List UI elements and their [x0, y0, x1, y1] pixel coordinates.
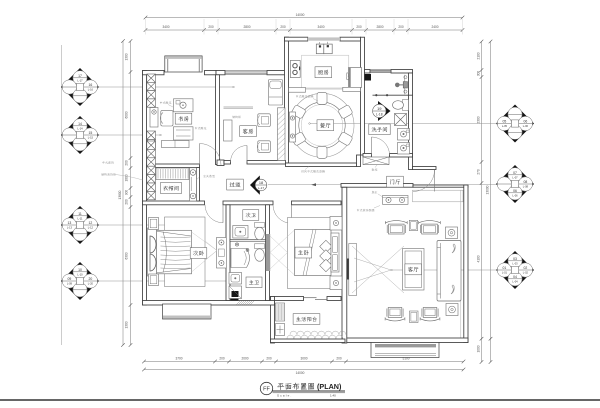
svg-text:06: 06 [524, 120, 528, 124]
svg-text:2300: 2300 [476, 116, 480, 123]
svg-text:3700: 3700 [175, 357, 182, 361]
svg-text:08: 08 [524, 180, 528, 184]
svg-text:1800: 1800 [125, 174, 129, 181]
svg-text:6300: 6300 [125, 252, 129, 259]
svg-text:06: 06 [513, 189, 517, 193]
svg-text:1000: 1000 [476, 345, 480, 352]
svg-text:Scale.: Scale. [277, 394, 293, 398]
svg-text:L-05: L-05 [502, 124, 508, 128]
svg-text:19: 19 [377, 106, 382, 111]
svg-text:13: 13 [68, 221, 72, 225]
svg-text:L-17: L-17 [77, 78, 83, 82]
svg-text:L-06: L-06 [512, 193, 518, 197]
svg-text:2100: 2100 [476, 52, 480, 59]
svg-text:900: 900 [125, 190, 129, 196]
svg-text:200: 200 [336, 357, 342, 361]
svg-text:200: 200 [356, 25, 362, 29]
svg-text:L-20: L-20 [88, 282, 94, 286]
svg-text:200: 200 [219, 357, 225, 361]
svg-text:L-16: L-16 [88, 88, 94, 92]
svg-text:2000: 2000 [241, 357, 248, 361]
svg-text:3000: 3000 [300, 357, 307, 361]
svg-text:13800: 13800 [118, 190, 122, 199]
svg-text:L-12: L-12 [88, 226, 94, 230]
svg-text:L-03: L-03 [512, 261, 518, 265]
svg-text:01: 01 [503, 266, 507, 270]
svg-text:L-04: L-04 [512, 279, 518, 283]
svg-text:13000: 13000 [485, 185, 489, 194]
svg-text:14: 14 [78, 122, 82, 126]
svg-text:07: 07 [513, 171, 517, 175]
svg-text:L-06: L-06 [523, 124, 529, 128]
svg-text:6000: 6000 [125, 111, 129, 118]
svg-text:14000: 14000 [296, 371, 305, 375]
svg-text:300: 300 [476, 71, 480, 77]
svg-text:(PLAN): (PLAN) [317, 382, 342, 391]
svg-text:04: 04 [513, 275, 517, 279]
svg-text:3400: 3400 [162, 25, 169, 29]
svg-text:L-11: L-11 [78, 216, 84, 220]
svg-text:200: 200 [266, 357, 272, 361]
svg-text:02: 02 [524, 266, 528, 270]
svg-text:L-15: L-15 [88, 136, 94, 140]
svg-text:L-09: L-09 [67, 282, 73, 286]
svg-text:200: 200 [125, 160, 129, 166]
svg-text:200: 200 [208, 25, 214, 29]
svg-text:L-10: L-10 [77, 272, 83, 276]
svg-text:12: 12 [89, 221, 93, 225]
svg-text:200: 200 [125, 199, 129, 205]
svg-text:1300: 1300 [125, 321, 129, 328]
svg-text:15: 15 [89, 131, 93, 135]
svg-text:20: 20 [89, 277, 93, 281]
svg-text:2800: 2800 [376, 25, 383, 29]
svg-text:4100: 4100 [476, 255, 480, 262]
svg-text:16: 16 [89, 83, 93, 87]
svg-text:17: 17 [78, 74, 82, 78]
svg-text:200: 200 [280, 25, 286, 29]
svg-text:3400: 3400 [317, 25, 324, 29]
svg-text:1300: 1300 [125, 53, 129, 60]
svg-text:18: 18 [259, 181, 263, 185]
svg-text:L-01: L-01 [502, 271, 508, 275]
svg-text:L-02: L-02 [523, 271, 529, 275]
svg-text:L-18: L-18 [376, 113, 383, 117]
svg-text:1:40: 1:40 [330, 394, 336, 398]
svg-text:2400: 2400 [431, 25, 438, 29]
svg-text:200: 200 [398, 25, 404, 29]
svg-text:2800: 2800 [243, 25, 250, 29]
svg-text:L-14: L-14 [77, 126, 83, 130]
svg-text:10: 10 [78, 268, 82, 272]
svg-text:03: 03 [513, 257, 517, 261]
svg-text:L-13: L-13 [67, 226, 73, 230]
svg-text:11: 11 [78, 212, 82, 216]
svg-text:L-17: L-17 [258, 186, 264, 190]
svg-text:09: 09 [68, 277, 72, 281]
svg-text:FF: FF [263, 387, 270, 393]
svg-text:L-08: L-08 [523, 185, 529, 189]
svg-text:05: 05 [503, 120, 507, 124]
svg-text:L-07: L-07 [512, 175, 518, 179]
svg-text:270: 270 [476, 169, 480, 175]
svg-text:14000: 14000 [296, 13, 305, 17]
